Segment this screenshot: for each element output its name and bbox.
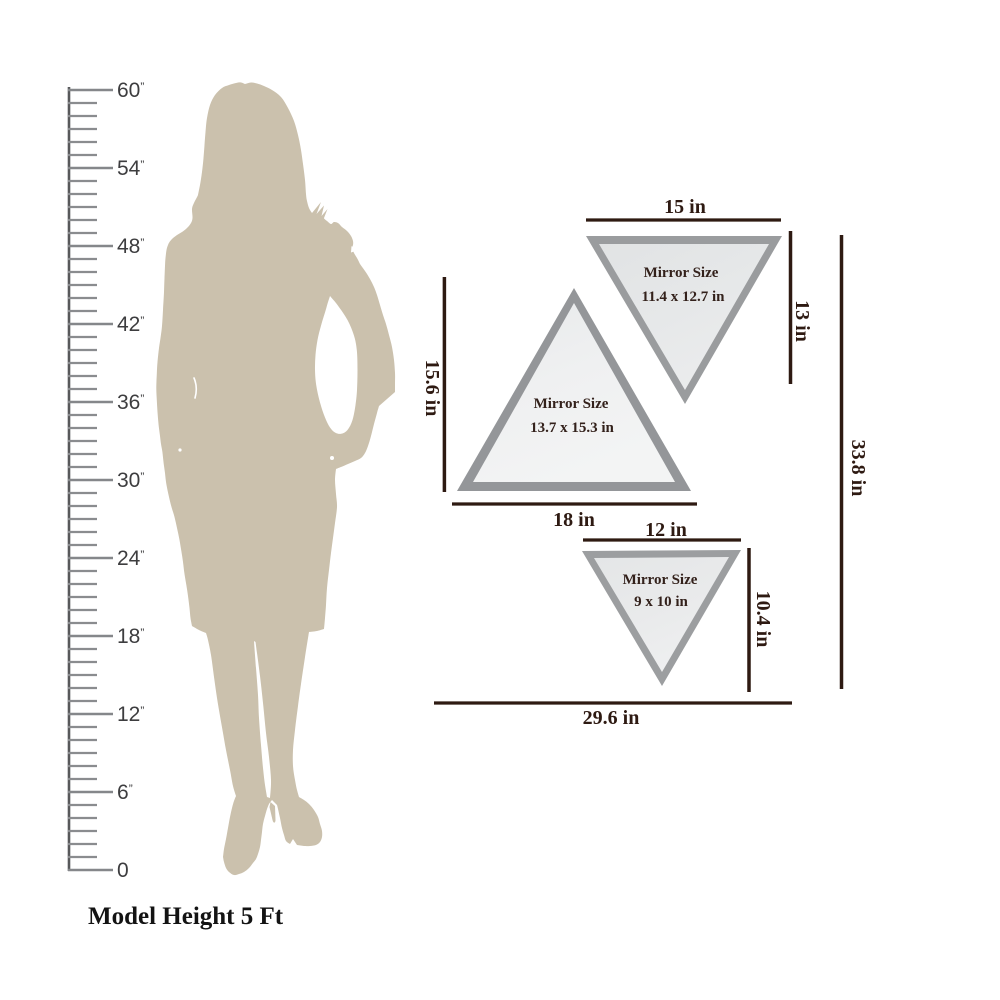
svg-text:Mirror Size: Mirror Size: [623, 572, 698, 588]
svg-text:10.4 in: 10.4 in: [752, 591, 774, 648]
svg-text:15.6 in: 15.6 in: [421, 360, 443, 417]
svg-text:60”: 60”: [117, 79, 144, 102]
svg-text:13 in: 13 in: [791, 300, 813, 342]
svg-text:54”: 54”: [117, 157, 144, 180]
svg-text:6”: 6”: [117, 781, 133, 804]
svg-text:Mirror Size: Mirror Size: [644, 265, 719, 281]
svg-text:48”: 48”: [117, 235, 144, 258]
svg-text:12”: 12”: [117, 703, 144, 726]
svg-text:33.8 in: 33.8 in: [847, 440, 869, 497]
svg-text:29.6 in: 29.6 in: [583, 707, 640, 729]
svg-text:36”: 36”: [117, 391, 144, 414]
svg-text:18 in: 18 in: [553, 509, 595, 531]
svg-text:9 x 10 in: 9 x 10 in: [634, 594, 688, 610]
svg-text:Model Height 5 Ft: Model Height 5 Ft: [88, 903, 284, 930]
svg-text:30”: 30”: [117, 469, 144, 492]
svg-text:24”: 24”: [117, 547, 144, 570]
svg-text:Mirror Size: Mirror Size: [534, 396, 609, 412]
svg-text:12 in: 12 in: [645, 519, 687, 541]
svg-text:13.7 x 15.3 in: 13.7 x 15.3 in: [530, 420, 614, 436]
svg-text:11.4 x 12.7 in: 11.4 x 12.7 in: [642, 289, 726, 305]
svg-text:15 in: 15 in: [664, 196, 706, 218]
svg-text:18”: 18”: [117, 625, 144, 648]
svg-text:42”: 42”: [117, 313, 144, 336]
svg-text:0: 0: [117, 859, 129, 882]
